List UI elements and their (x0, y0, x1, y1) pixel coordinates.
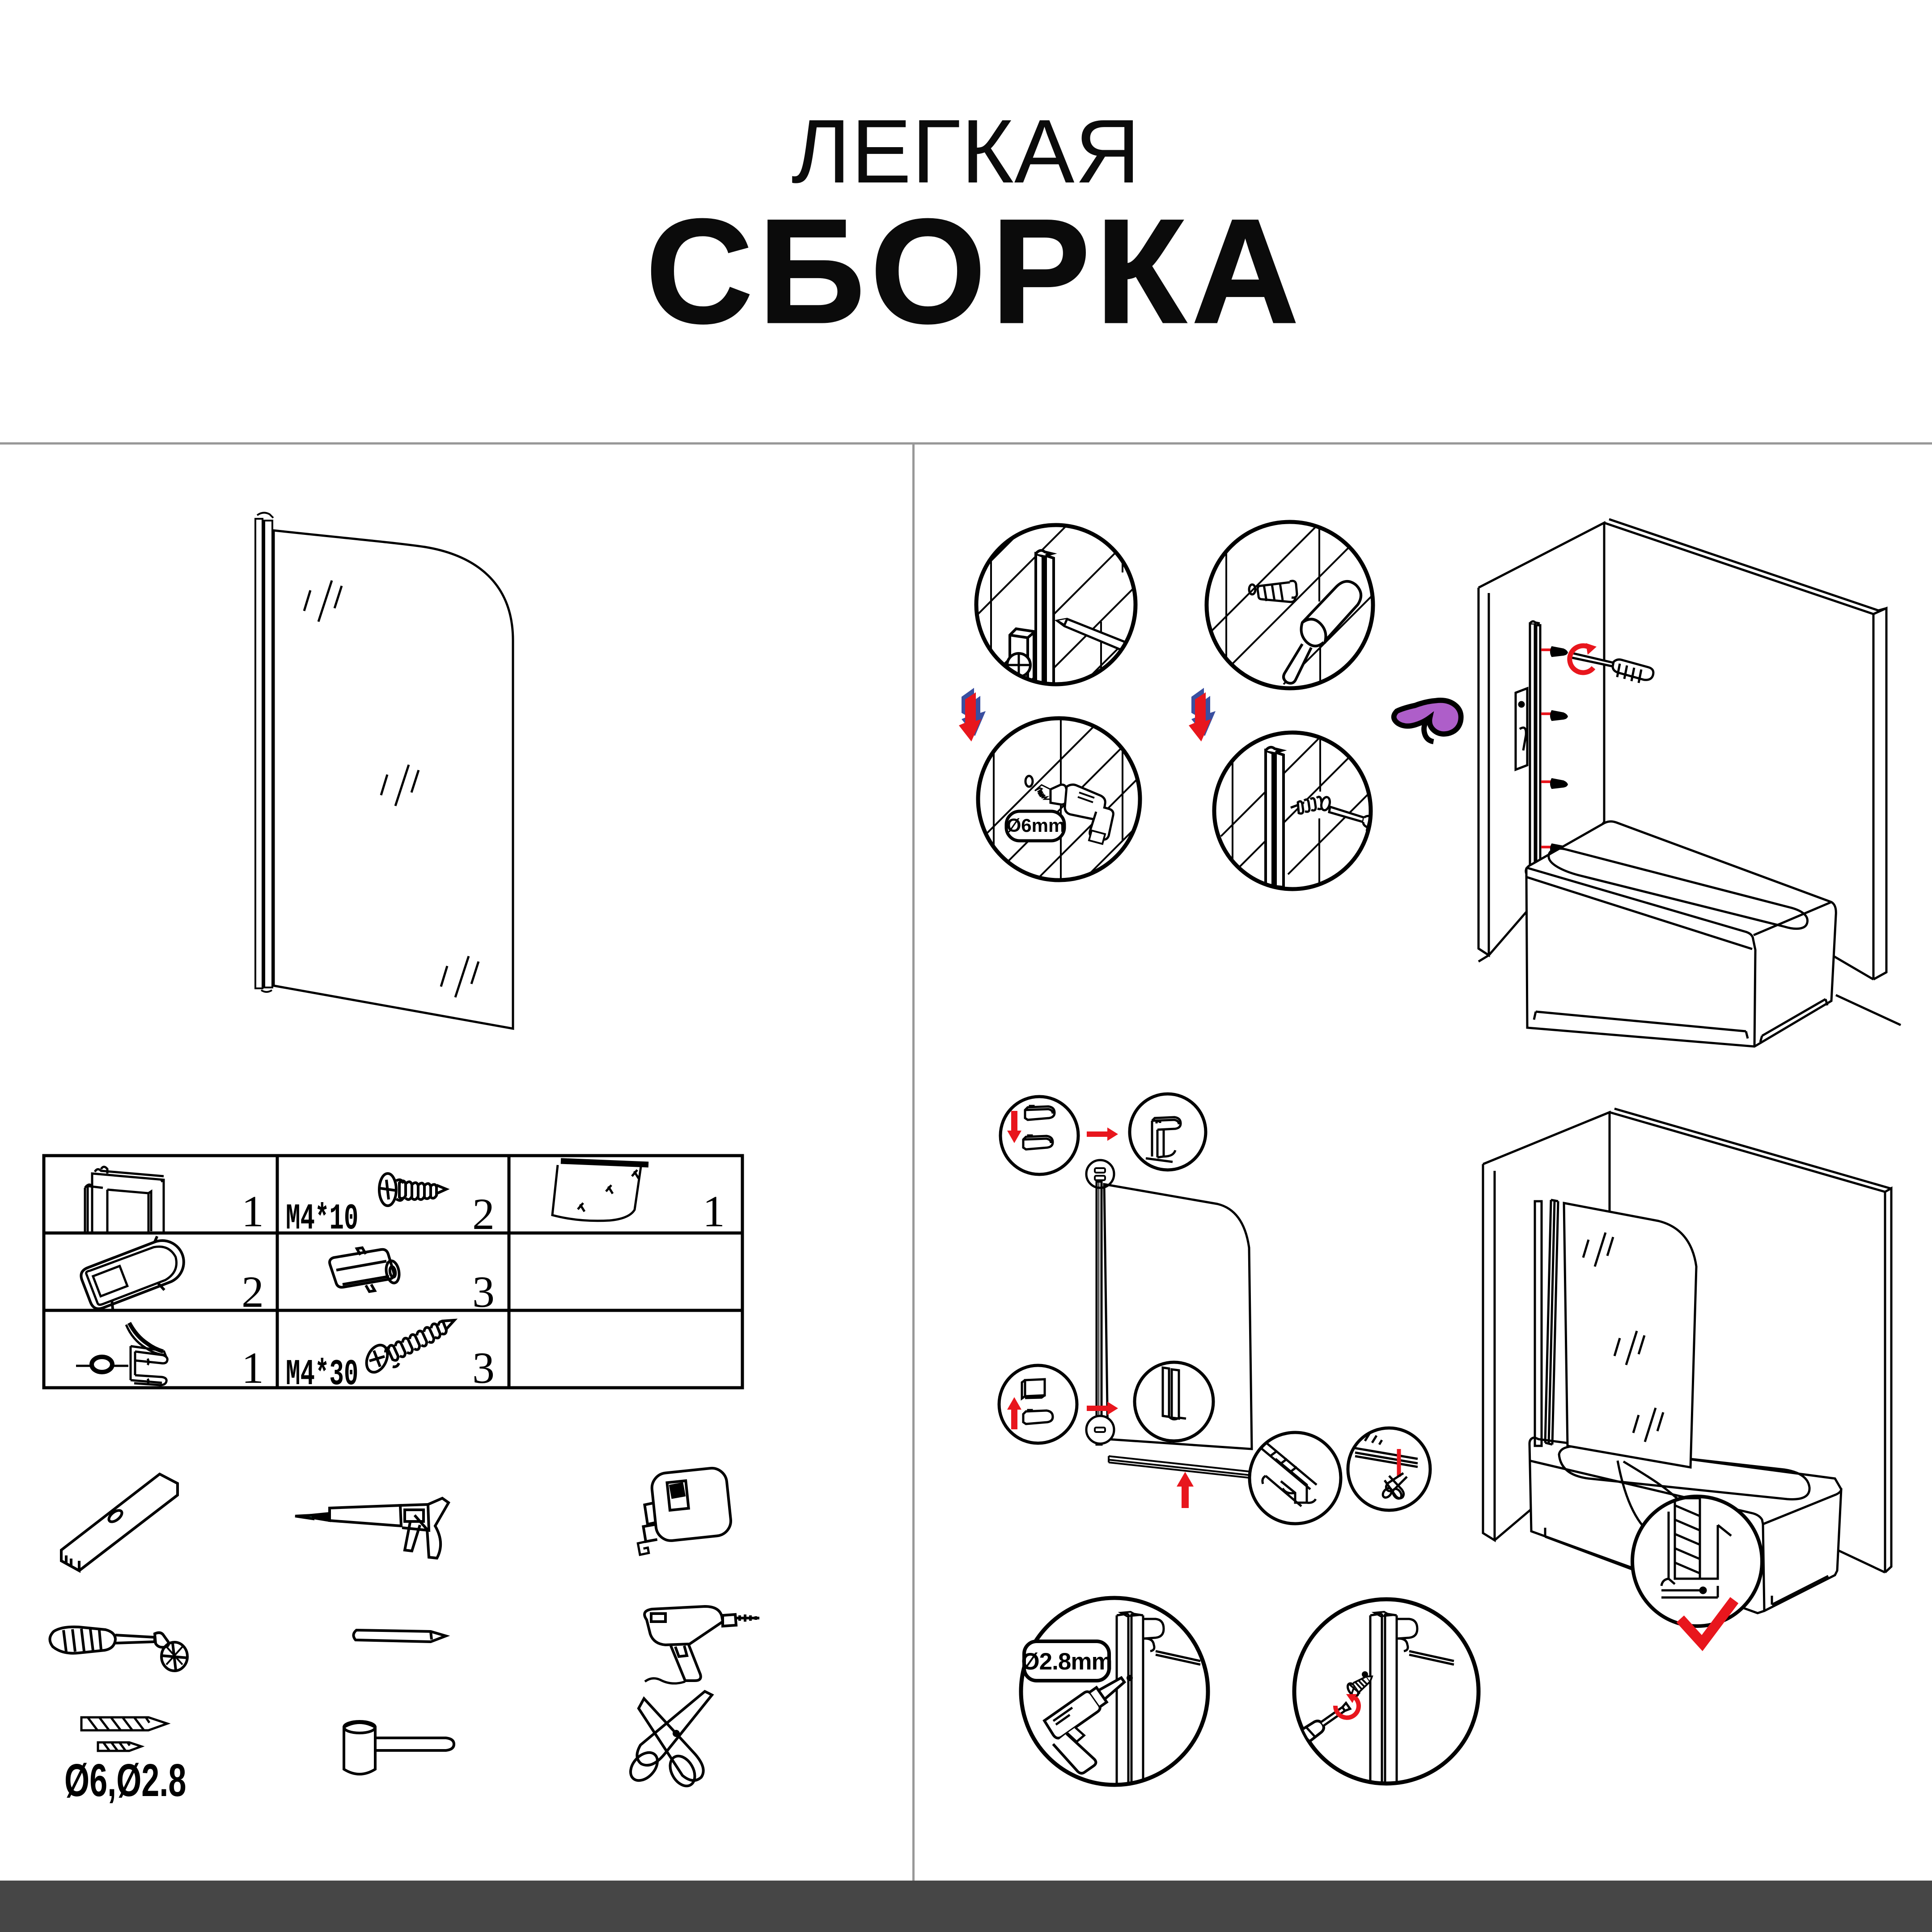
svg-text:СБОРКА: СБОРКА (646, 188, 1304, 354)
svg-text:3: 3 (472, 1267, 495, 1317)
svg-text:M4*10: M4*10 (286, 1198, 358, 1240)
svg-text:M4*30: M4*30 (286, 1354, 358, 1395)
svg-text:3: 3 (472, 1343, 495, 1393)
svg-text:1: 1 (241, 1186, 264, 1236)
svg-text:Ø2.8mm: Ø2.8mm (1021, 1648, 1112, 1675)
svg-text:1: 1 (241, 1343, 264, 1393)
svg-text:2: 2 (472, 1189, 495, 1239)
svg-text:2: 2 (241, 1267, 264, 1317)
svg-text:1: 1 (703, 1186, 725, 1236)
svg-text:Ø6,Ø2.8: Ø6,Ø2.8 (64, 1754, 186, 1806)
svg-text:ЛЕГКАЯ: ЛЕГКАЯ (792, 101, 1141, 202)
svg-text:Ø6mm: Ø6mm (1007, 815, 1065, 836)
